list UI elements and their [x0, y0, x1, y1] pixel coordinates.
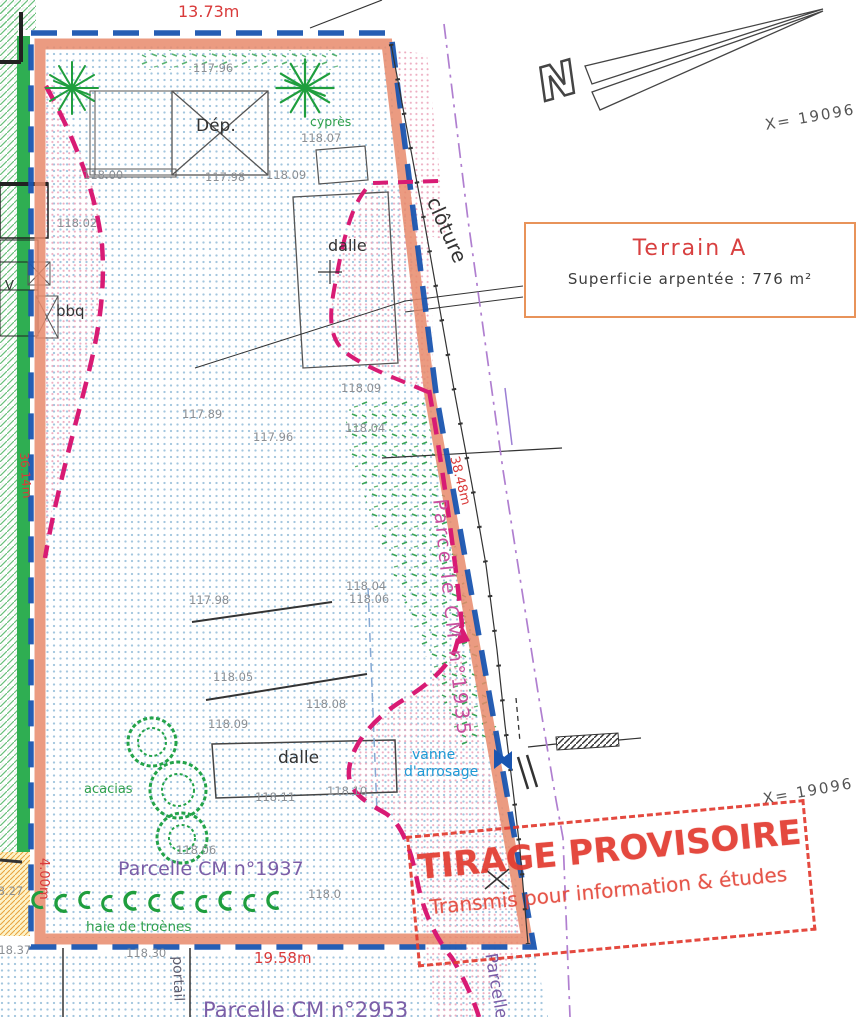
- hedge-strip-west: [17, 36, 30, 852]
- label-acacias: acacias: [84, 783, 133, 796]
- spot-elevation: 118.0: [308, 889, 341, 901]
- spot-elevation: 117.98: [189, 595, 229, 607]
- label-dalle-lower: dalle: [278, 750, 319, 767]
- spot-elevation: 118.37: [0, 945, 31, 957]
- spot-elevation: 117.96: [193, 63, 233, 75]
- spot-elevation: 118.06: [349, 594, 389, 606]
- retaining-wall-east: [516, 698, 641, 789]
- spot-elevation: 117.96: [253, 432, 293, 444]
- terrain-title: Terrain A: [526, 236, 854, 261]
- label-v: V: [5, 280, 14, 293]
- spot-elevation: 118.02: [57, 218, 97, 230]
- drain-line: [505, 388, 512, 445]
- spot-elevation: 118.06: [176, 845, 216, 857]
- label-vanne-1: vanne: [412, 748, 455, 762]
- label-haie: haie de troènes: [86, 921, 191, 935]
- spot-elevation: 118.04: [345, 423, 385, 435]
- label-dep: Dép.: [196, 118, 236, 135]
- spot-elevation: 118.04: [346, 581, 386, 593]
- spot-elevation: 118.08: [306, 699, 346, 711]
- terrain-area: Superficie arpentée : 776 m²: [526, 270, 854, 288]
- spot-elevation: 118.09: [266, 170, 306, 182]
- parcel-label-1937: Parcelle CM n°1937: [118, 860, 304, 879]
- spot-elevation: 118.27: [0, 886, 23, 898]
- label-cypres: cyprès: [310, 116, 351, 129]
- spot-elevation: 118.09: [208, 719, 248, 731]
- spot-elevation: 118.00: [83, 170, 123, 182]
- parcel-label-2953: Parcelle CM n°2953: [203, 1000, 408, 1017]
- spot-elevation: 118.09: [341, 383, 381, 395]
- terrain-info-box: Terrain A Superficie arpentée : 776 m²: [524, 222, 856, 318]
- label-dalle-upper: dalle: [328, 238, 367, 254]
- spot-elevation: 118.05: [213, 672, 253, 684]
- label-vanne-2: d'arrosage: [404, 765, 478, 779]
- spot-elevation: 117.98: [205, 172, 245, 184]
- dimension-south-west: 4.00m: [37, 858, 50, 900]
- label-portail: portail: [170, 956, 186, 1002]
- spot-elevation: 118.30: [126, 948, 166, 960]
- spot-elevation: 118.10: [327, 786, 367, 798]
- north-letter: N: [535, 49, 580, 114]
- label-bbq: bbq: [56, 304, 85, 319]
- dimension-south: 19.58m: [254, 951, 312, 966]
- spot-elevation: 118.11: [255, 792, 295, 804]
- spot-elevation: 118.07: [301, 133, 341, 145]
- survey-plan: 13.73m 19.58m 38.48m 36.14m 4.00m N X= 1…: [0, 0, 860, 1017]
- spot-elevation: 117.89: [182, 409, 222, 421]
- north-arrow: [585, 9, 823, 110]
- dimension-west: 36.14m: [18, 452, 33, 499]
- dimension-north: 13.73m: [178, 4, 239, 20]
